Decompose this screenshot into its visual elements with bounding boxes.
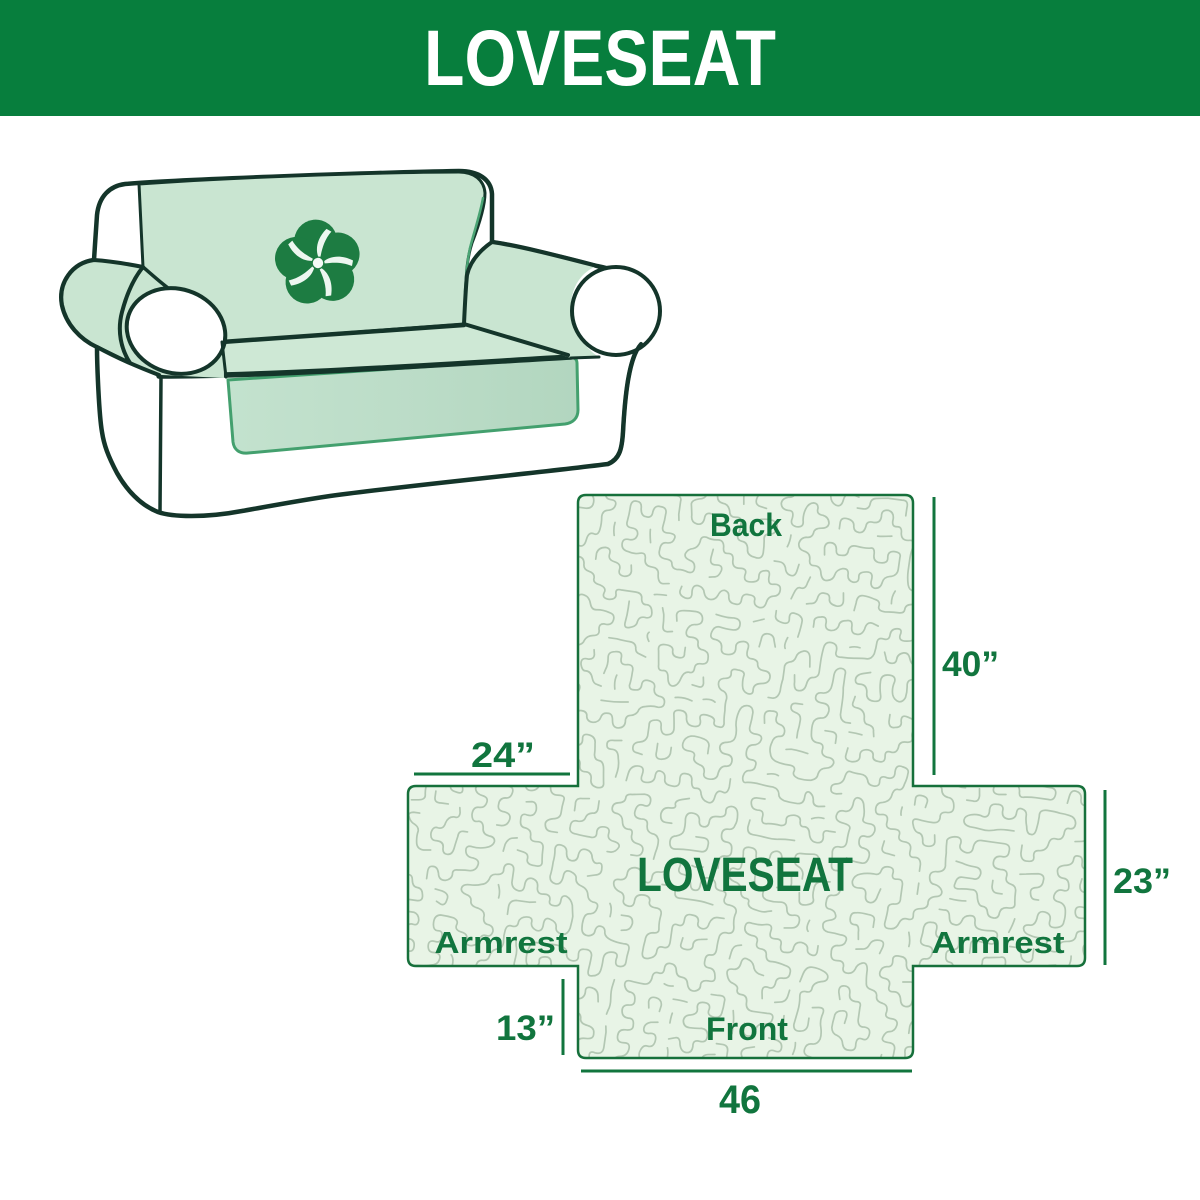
svg-text:46: 46	[719, 1078, 761, 1122]
svg-text:Armrest: Armrest	[435, 925, 568, 960]
svg-text:Armrest: Armrest	[932, 925, 1065, 960]
svg-text:23”: 23”	[1113, 862, 1171, 901]
svg-text:Front: Front	[706, 1011, 788, 1047]
svg-text:LOVESEAT: LOVESEAT	[637, 849, 853, 902]
svg-text:LOVESEAT: LOVESEAT	[424, 13, 776, 102]
svg-text:13”: 13”	[496, 1009, 555, 1048]
svg-text:24”: 24”	[471, 736, 535, 775]
svg-text:40”: 40”	[942, 645, 999, 684]
svg-text:Back: Back	[710, 507, 782, 543]
